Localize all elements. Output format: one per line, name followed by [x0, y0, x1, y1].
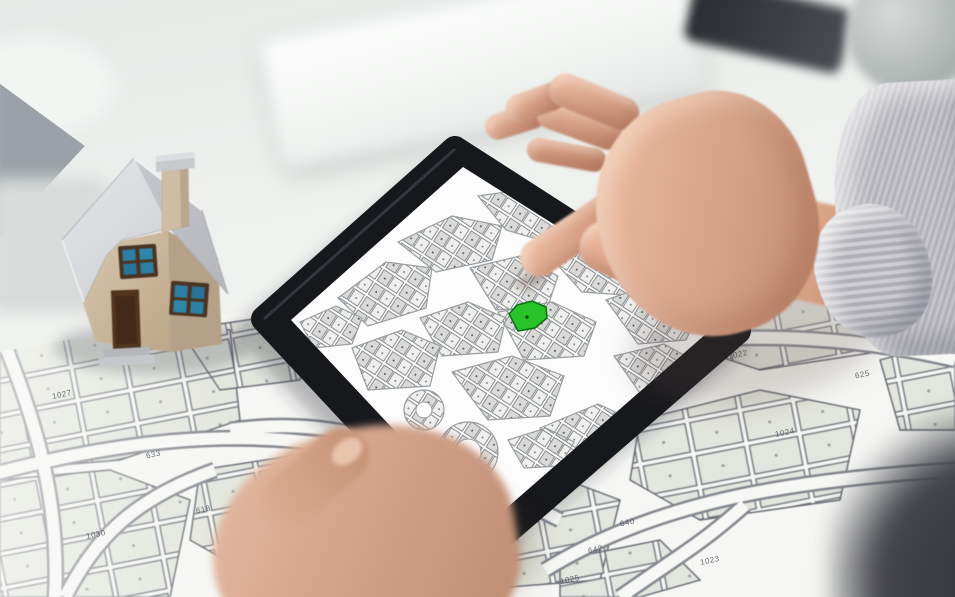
- photo-scene: 1027 633 1030 618 1025 642 640 1023 1024…: [0, 0, 955, 597]
- cul-de-sac-loop: [416, 402, 432, 418]
